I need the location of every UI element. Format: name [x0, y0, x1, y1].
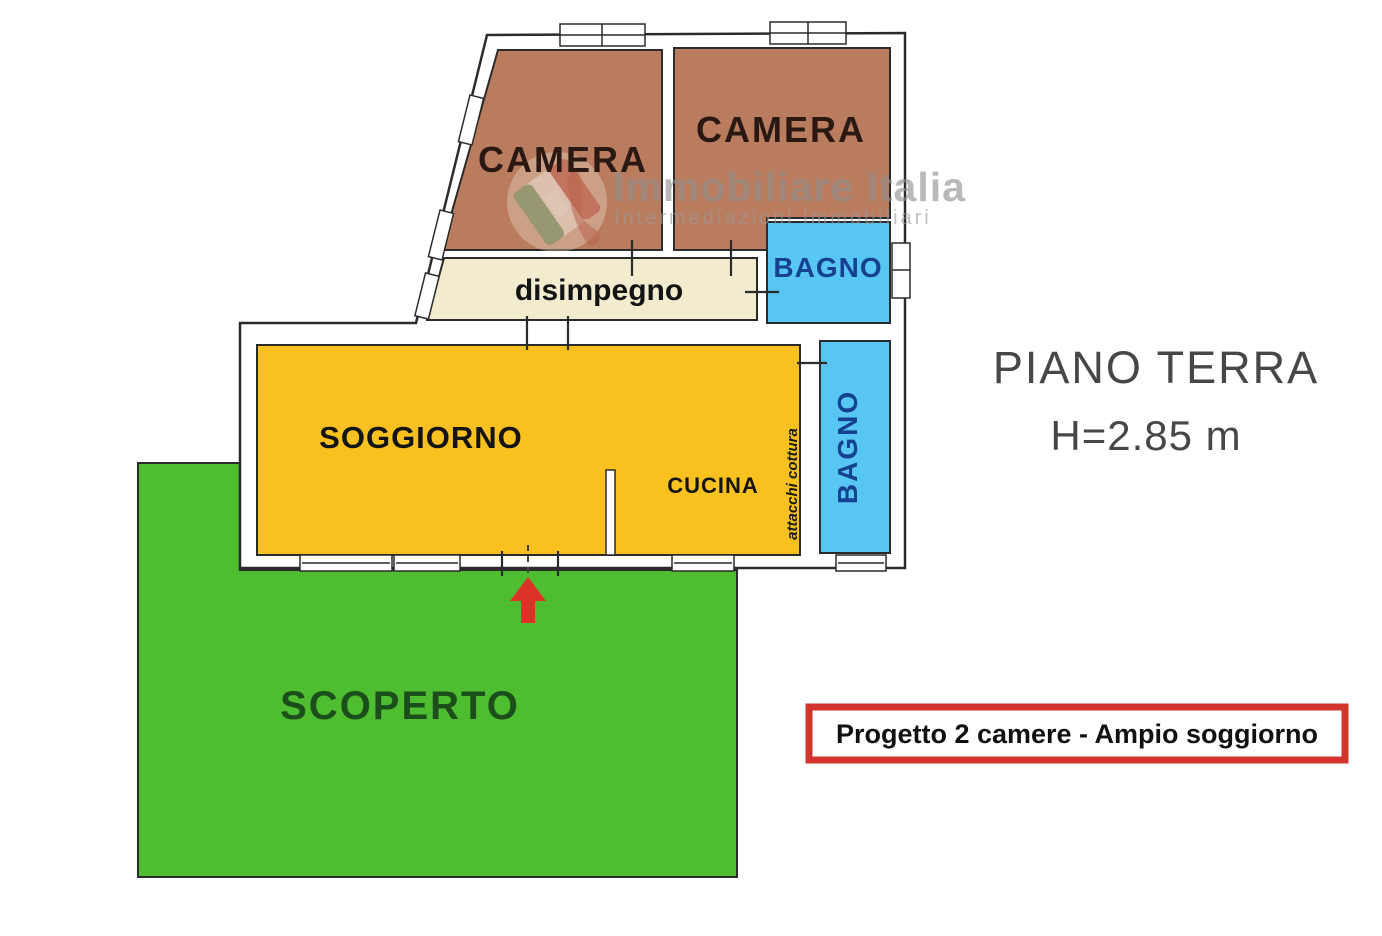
label-disimpegno: disimpegno [515, 274, 683, 307]
label-scoperto: SCOPERTO [280, 684, 520, 728]
label-attacchi-cottura: attacchi cottura [784, 428, 801, 540]
label-soggiorno: SOGGIORNO [319, 420, 523, 455]
label-camera-left: CAMERA [478, 139, 648, 180]
floor-plan-drawing: Immobiliare Italia Intermediazioni immob… [0, 0, 1382, 936]
floor-title: PIANO TERRA [993, 342, 1319, 393]
label-bagno-top: BAGNO [773, 252, 882, 283]
agency-tagline-watermark: Intermediazioni immobiliari [614, 207, 932, 229]
kitchen-partition-wall [606, 470, 615, 555]
label-camera-right: CAMERA [696, 109, 866, 150]
label-cucina: CUCINA [667, 473, 759, 498]
project-label-text: Progetto 2 camere - Ampio soggiorno [836, 719, 1318, 749]
floor-height: H=2.85 m [1050, 412, 1241, 459]
label-bagno-right: BAGNO [832, 390, 863, 504]
agency-name-watermark: Immobiliare Italia [613, 164, 966, 210]
floor-plan-page: Immobiliare Italia Intermediazioni immob… [0, 0, 1382, 936]
window-marker-right-wall [892, 243, 910, 298]
